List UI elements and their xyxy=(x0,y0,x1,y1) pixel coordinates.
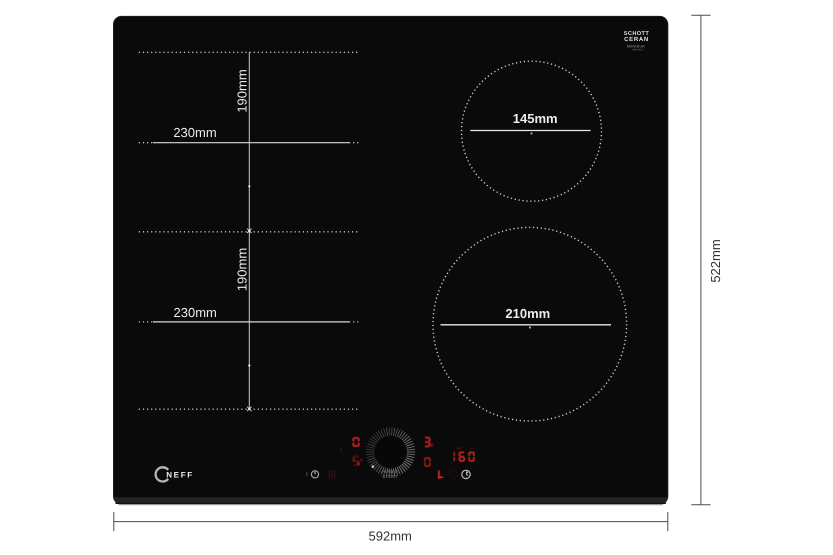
svg-text:592mm: 592mm xyxy=(369,529,412,544)
svg-text:230mm: 230mm xyxy=(173,125,216,140)
svg-text:NEFF: NEFF xyxy=(166,470,194,479)
svg-text:190mm: 190mm xyxy=(234,69,249,112)
svg-text:522mm: 522mm xyxy=(708,239,723,282)
svg-text:210mm: 210mm xyxy=(505,306,550,321)
svg-text:190mm: 190mm xyxy=(234,248,249,291)
svg-text:230mm: 230mm xyxy=(174,305,217,320)
svg-text:BOOST: BOOST xyxy=(383,474,398,479)
svg-text:CERAN: CERAN xyxy=(624,36,649,43)
svg-text:145mm: 145mm xyxy=(513,111,558,126)
svg-text:PROTECT: PROTECT xyxy=(632,49,644,52)
